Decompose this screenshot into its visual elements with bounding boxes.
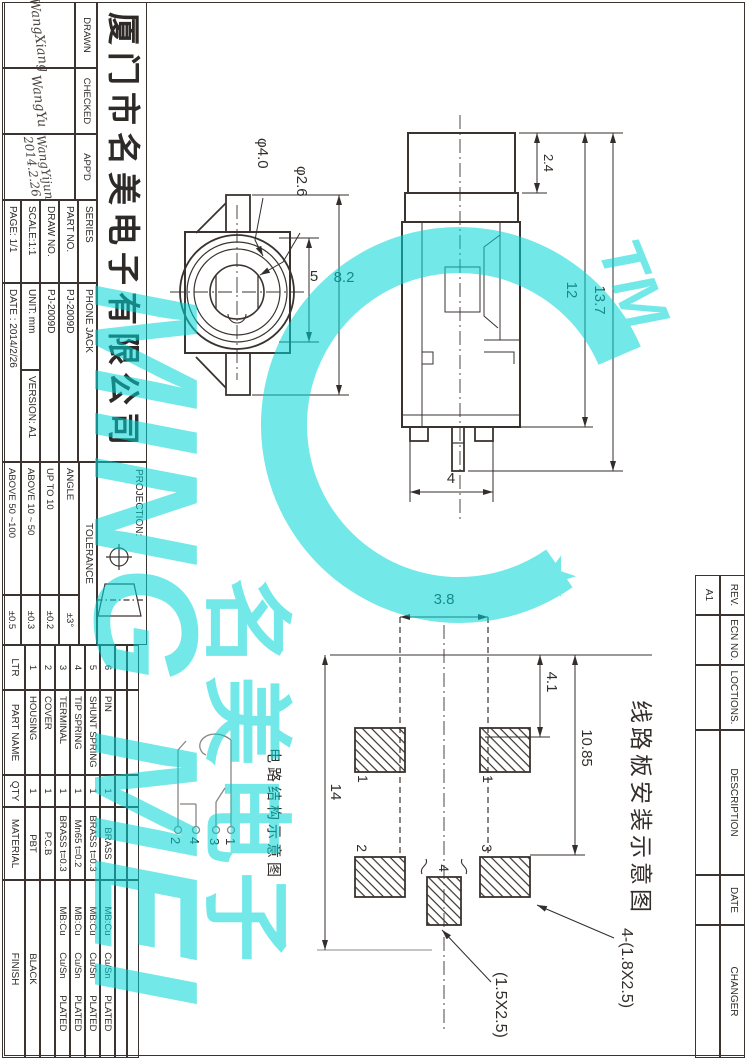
draw-no-label: DRAW NO. [40, 200, 59, 283]
series-label: SERIES [78, 200, 97, 283]
rev-value-description [695, 730, 720, 875]
bom-row1-material: PBT [25, 807, 40, 880]
bom-row4-part: TIP SPRING [70, 690, 85, 775]
bom-row1-ltr: 1 [25, 645, 40, 690]
version-field: VERSION: A1 [21, 370, 40, 462]
bom-row4-material: Mn65 t=0.2 [70, 807, 85, 880]
projection-label: PROJECTION: [133, 469, 144, 536]
bom-row3-finish: MB:Cu Cu/Sn PLATED [55, 880, 70, 1058]
unit-field: UNIT: mm [21, 283, 40, 370]
rev-value-date [695, 875, 720, 925]
scale-field: SCALE:1:1 [21, 200, 40, 283]
bom-header-finish: FINISH [2, 880, 25, 1058]
bom-spare-cell [127, 645, 139, 690]
bom-header-ltr: LTR [2, 645, 25, 690]
bom-row5-finish: MB:Cu Cu/Sn PLATED [85, 880, 100, 1058]
bom-spare-cell [115, 880, 127, 1058]
bom-header-part-name: PART NAME [2, 690, 25, 775]
bom-row3-qty: 1 [55, 775, 70, 807]
tolerance-value-upto10: ±0.2 [40, 595, 59, 645]
bom-row6-part: PIN [100, 690, 115, 775]
bom-row5-material: BRASS t=0.3 [85, 807, 100, 880]
drawn-signature-text: WangXiang [27, 0, 51, 73]
part-no-value: PJ-2009D [59, 283, 78, 462]
drawing-sheet: 厦门市名美电子有限公司 DRAWN CHECKED APP'D WangXian… [0, 0, 747, 1060]
tolerance-value-50to100: ±0.5 [2, 595, 21, 645]
approved-label: APP'D [75, 134, 97, 200]
bom-row3-part: TERMINAL [55, 690, 70, 775]
tolerance-range-50to100: ABOVE 50 ~100 [2, 462, 21, 595]
bom-row4-finish: MB:Cu Cu/Sn PLATED [70, 880, 85, 1058]
rev-header-locations: LOCTIONS. [720, 665, 745, 730]
rev-value-rev: A1 [695, 575, 720, 615]
rev-header-date: DATE [720, 875, 745, 925]
tolerance-header: TOLERANCE [79, 462, 97, 645]
bom-spare-cell [127, 690, 139, 775]
tolerance-range-angle: ANGLE [59, 462, 79, 595]
rev-header-rev: REV. [720, 575, 745, 615]
bom-spare-cell [115, 775, 127, 807]
bom-row5-ltr: 5 [85, 645, 100, 690]
tolerance-range-upto10: UP TO 10 [40, 462, 59, 595]
tolerance-range-10to50: ABOVE 10 ~ 50 [21, 462, 40, 595]
bom-spare-cell [127, 807, 139, 880]
date-field: DATE : 2014/2/26 [2, 283, 21, 462]
drawing-page: 厦门市名美电子有限公司 DRAWN CHECKED APP'D WangXian… [0, 0, 747, 1060]
bom-row6-finish: MB:Cu Cu/Sn PLATED [100, 880, 115, 1058]
bom-row2-ltr: 2 [40, 645, 55, 690]
drawn-signature: WangXiang [2, 2, 75, 68]
bom-header-qty: QTY [2, 775, 25, 807]
bom-spare-cell [127, 880, 139, 1058]
bom-row6-material: BRASS [100, 807, 115, 880]
bom-row2-material: P.C.B [40, 807, 55, 880]
rev-header-changer: CHANGER [720, 925, 745, 1058]
series-value: PHONE JACK [78, 283, 97, 462]
bom-row5-part: SHUNT SPRING [85, 690, 100, 775]
bom-row3-ltr: 3 [55, 645, 70, 690]
rev-value-ecn [695, 615, 720, 665]
drawn-label: DRAWN [75, 2, 97, 68]
bom-row4-ltr: 4 [70, 645, 85, 690]
approved-signature: WangYijun 2014.2.26 [2, 134, 75, 200]
bom-row1-finish: BLACK [25, 880, 40, 1058]
projection-cell: PROJECTION: [97, 462, 147, 645]
draw-no-value: PJ-2009D [40, 283, 59, 462]
bom-row3-material: BRASS t=0.3 [55, 807, 70, 880]
company-name: 厦门市名美电子有限公司 [97, 2, 147, 462]
page-field: PAGE: 1/1 [2, 200, 21, 283]
bom-spare-cell [115, 645, 127, 690]
bom-row2-finish [40, 880, 55, 1058]
bom-spare-cell [127, 775, 139, 807]
bom-row2-qty: 1 [40, 775, 55, 807]
checked-signature: WangYu [2, 68, 75, 134]
bom-header-material: MATERIAL [2, 807, 25, 880]
bom-row1-qty: 1 [25, 775, 40, 807]
bom-row2-part: COVER [40, 690, 55, 775]
bom-spare-cell [115, 690, 127, 775]
rev-value-locations [695, 665, 720, 730]
bom-row6-qty: 1 [100, 775, 115, 807]
rev-value-changer [695, 925, 720, 1058]
bom-row4-qty: 1 [70, 775, 85, 807]
bom-row5-qty: 1 [85, 775, 100, 807]
tolerance-value-angle: ±3° [59, 595, 79, 645]
tables-layer: 厦门市名美电子有限公司 DRAWN CHECKED APP'D WangXian… [0, 0, 747, 1060]
tolerance-value-10to50: ±0.3 [21, 595, 40, 645]
rev-header-ecn: ECN NO. [720, 615, 745, 665]
bom-row1-part: HOUSING [25, 690, 40, 775]
part-no-label: PART NO. [59, 200, 78, 283]
bom-row6-ltr: 6 [100, 645, 115, 690]
rev-header-description: DESCRIPTION [720, 730, 745, 875]
checked-label: CHECKED [75, 68, 97, 134]
checked-signature-text: WangYu [28, 74, 49, 128]
bom-spare-cell [115, 807, 127, 880]
